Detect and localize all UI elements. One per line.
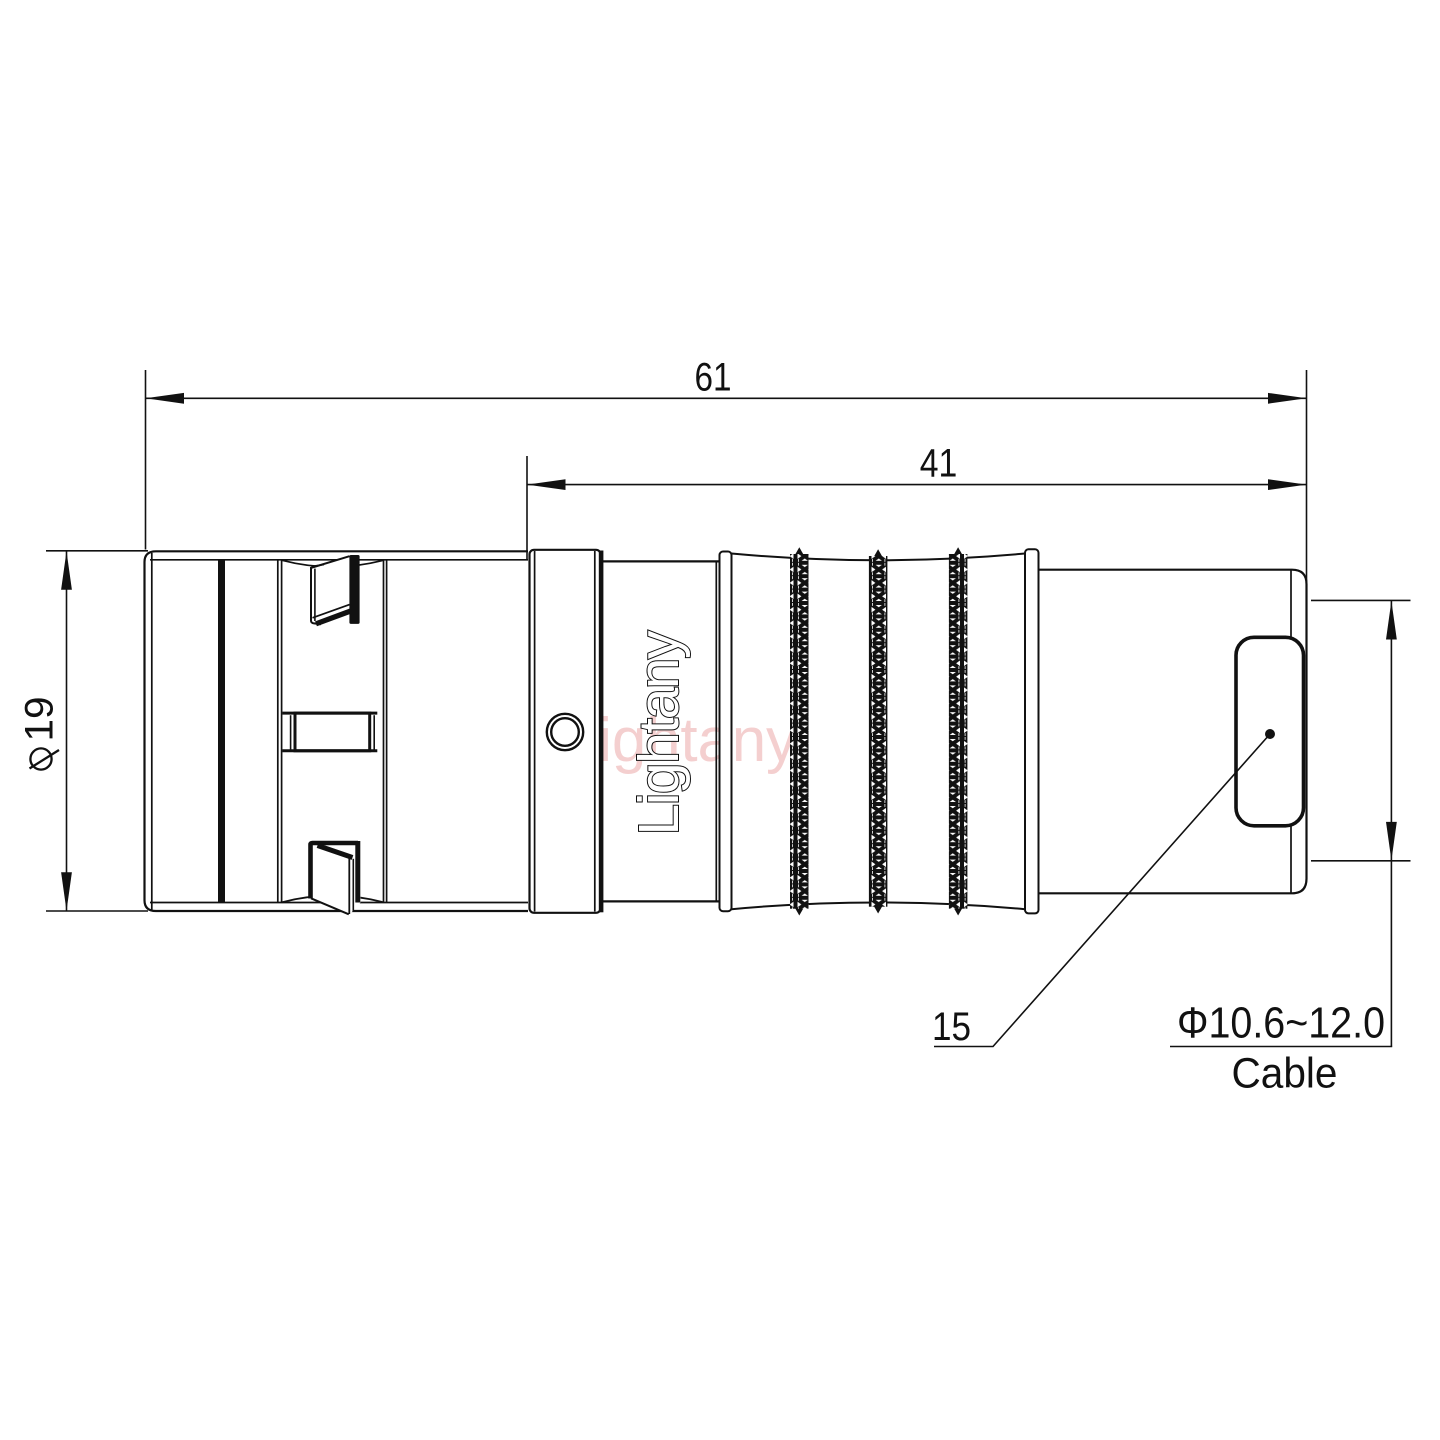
svg-text:Φ10.6~12.0: Φ10.6~12.0 — [1177, 999, 1385, 1048]
svg-text:Cable: Cable — [1232, 1050, 1338, 1098]
svg-text:61: 61 — [695, 356, 732, 400]
svg-text:19: 19 — [18, 697, 62, 742]
svg-text:15: 15 — [932, 1005, 971, 1049]
svg-text:Lightany: Lightany — [627, 630, 691, 836]
svg-text:41: 41 — [920, 442, 958, 486]
